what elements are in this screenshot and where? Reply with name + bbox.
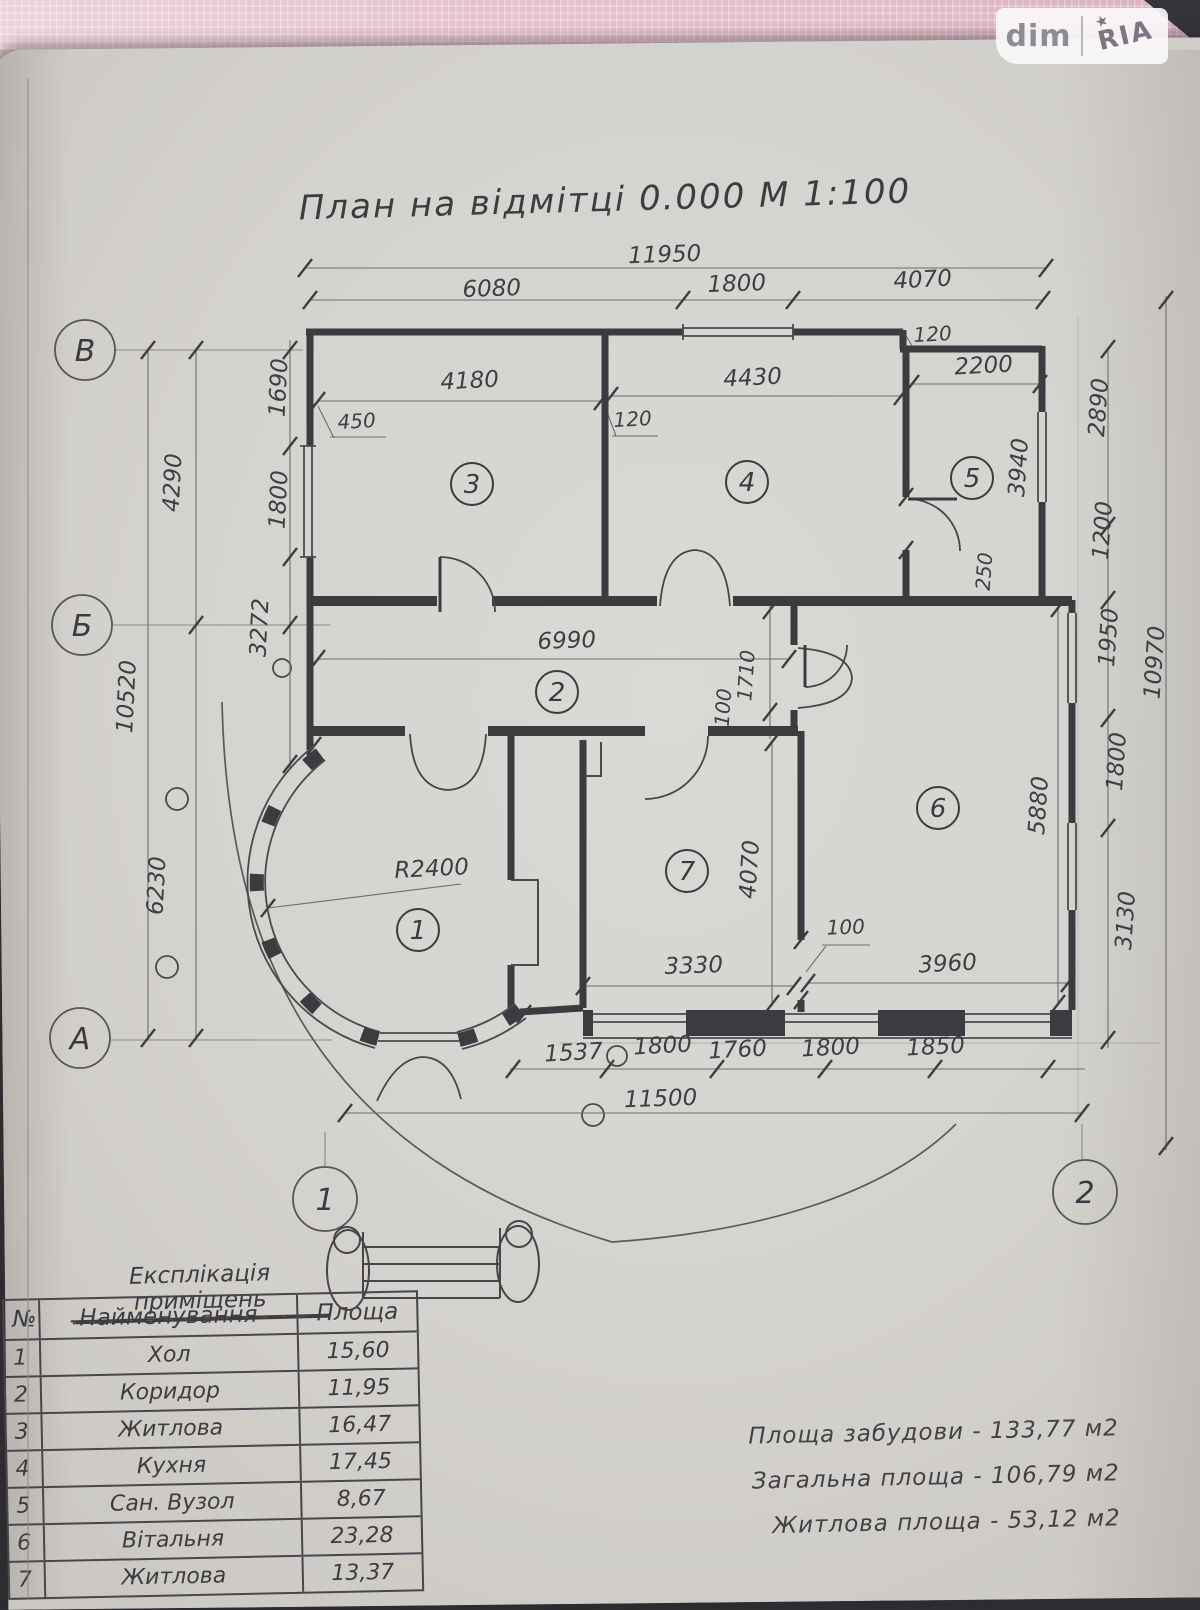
table-cell: 17,45 bbox=[301, 1443, 420, 1480]
table-cell: Вітальня bbox=[45, 1520, 304, 1560]
table-cell: 6 bbox=[9, 1525, 46, 1561]
table-cell: Кухня bbox=[43, 1446, 302, 1486]
area-summary-line: Житлова площа - 53,12 м2 bbox=[701, 1505, 1121, 1541]
table-cell: 7 bbox=[10, 1562, 47, 1598]
table-cell: 23,28 bbox=[303, 1517, 422, 1554]
table-cell: 3 bbox=[6, 1414, 43, 1450]
area-summary: Площа забудови - 133,77 м2Загальна площа… bbox=[699, 1415, 1122, 1559]
table-cell: 15,60 bbox=[299, 1332, 418, 1369]
dim-ria-watermark: dim ★ RIA bbox=[996, 8, 1168, 64]
table-cell: 4 bbox=[7, 1451, 44, 1487]
ria-logo-text: ★ RIA bbox=[1081, 12, 1171, 60]
table-cell: 13,37 bbox=[303, 1554, 422, 1591]
table-cell: Хол bbox=[41, 1335, 300, 1375]
table-cell: 8,67 bbox=[302, 1480, 421, 1517]
table-header-cell: Найменування bbox=[40, 1295, 299, 1338]
table-cell: 1 bbox=[5, 1340, 42, 1376]
table-cell: 2 bbox=[6, 1377, 43, 1413]
area-summary-line: Загальна площа - 106,79 м2 bbox=[700, 1460, 1120, 1496]
dim-logo-text: dim bbox=[996, 19, 1081, 54]
room-explication-table: №НайменуванняПлоща1Хол15,602Коридор11,95… bbox=[2, 1290, 424, 1600]
photographed-floorplan-page: { "watermark": { "dim": "dim", "ria": "R… bbox=[0, 0, 1200, 1600]
table-header-cell: Площа bbox=[298, 1292, 417, 1332]
table-cell: Коридор bbox=[42, 1372, 301, 1412]
table-cell: Житлова bbox=[46, 1557, 305, 1597]
table-cell: 5 bbox=[8, 1488, 45, 1524]
table-cell: 11,95 bbox=[300, 1369, 419, 1406]
table-cell: 16,47 bbox=[300, 1406, 419, 1443]
table-header-cell: № bbox=[4, 1300, 41, 1339]
table-cell: Сан. Вузол bbox=[44, 1483, 303, 1523]
table-cell: Житлова bbox=[42, 1409, 301, 1449]
